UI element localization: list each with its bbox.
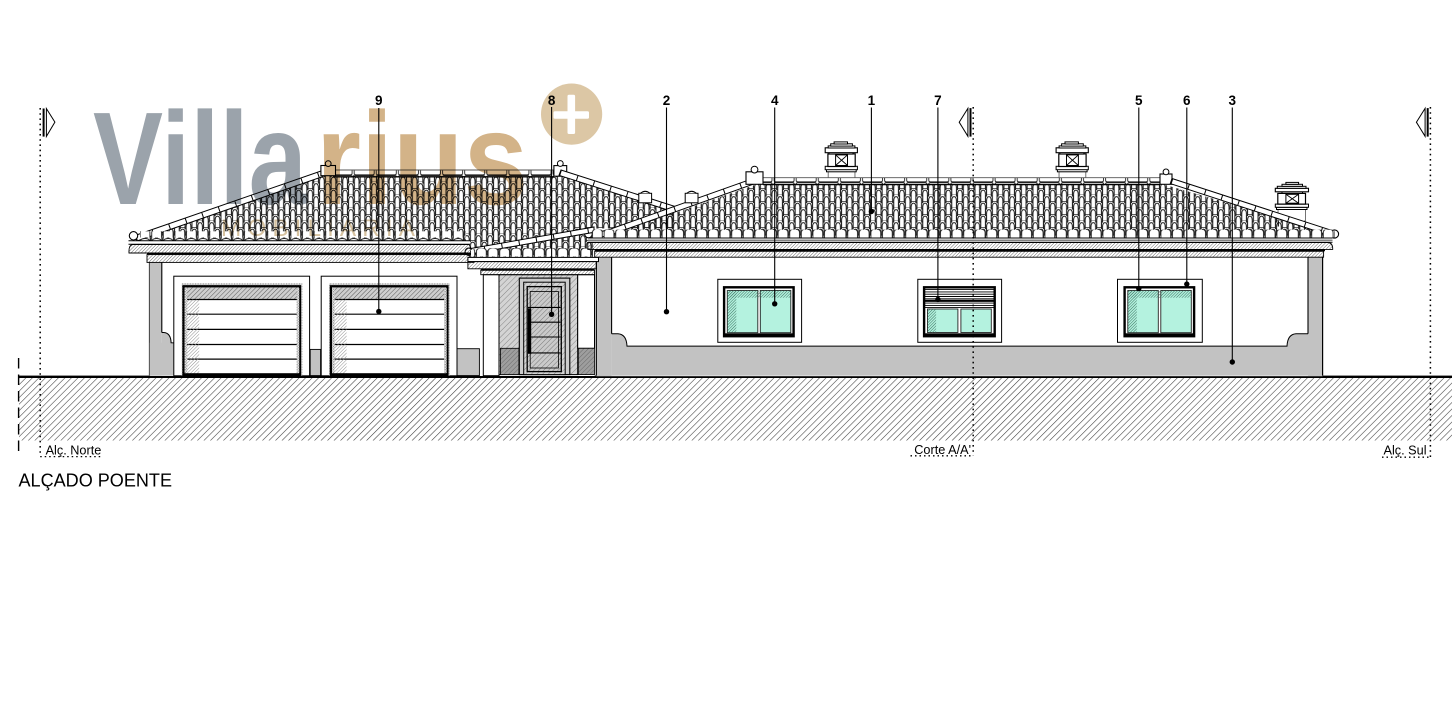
svg-text:4: 4 [771,93,779,108]
svg-text:MOBILIARIA: MOBILIARIA [221,215,421,242]
svg-text:2: 2 [663,93,671,108]
svg-text:ALÇADO POENTE: ALÇADO POENTE [19,470,173,491]
svg-text:Alç. Sul: Alç. Sul [1384,444,1427,458]
svg-text:1: 1 [868,93,876,108]
svg-text:3: 3 [1229,93,1237,108]
svg-text:Alç. Norte: Alç. Norte [46,444,102,458]
svg-text:Corte A/A': Corte A/A' [914,443,971,457]
svg-text:Villa: Villa [93,85,308,232]
svg-text:rius: rius [316,85,528,232]
svg-text:5: 5 [1135,93,1143,108]
svg-text:6: 6 [1183,93,1191,108]
svg-text:7: 7 [934,93,942,108]
